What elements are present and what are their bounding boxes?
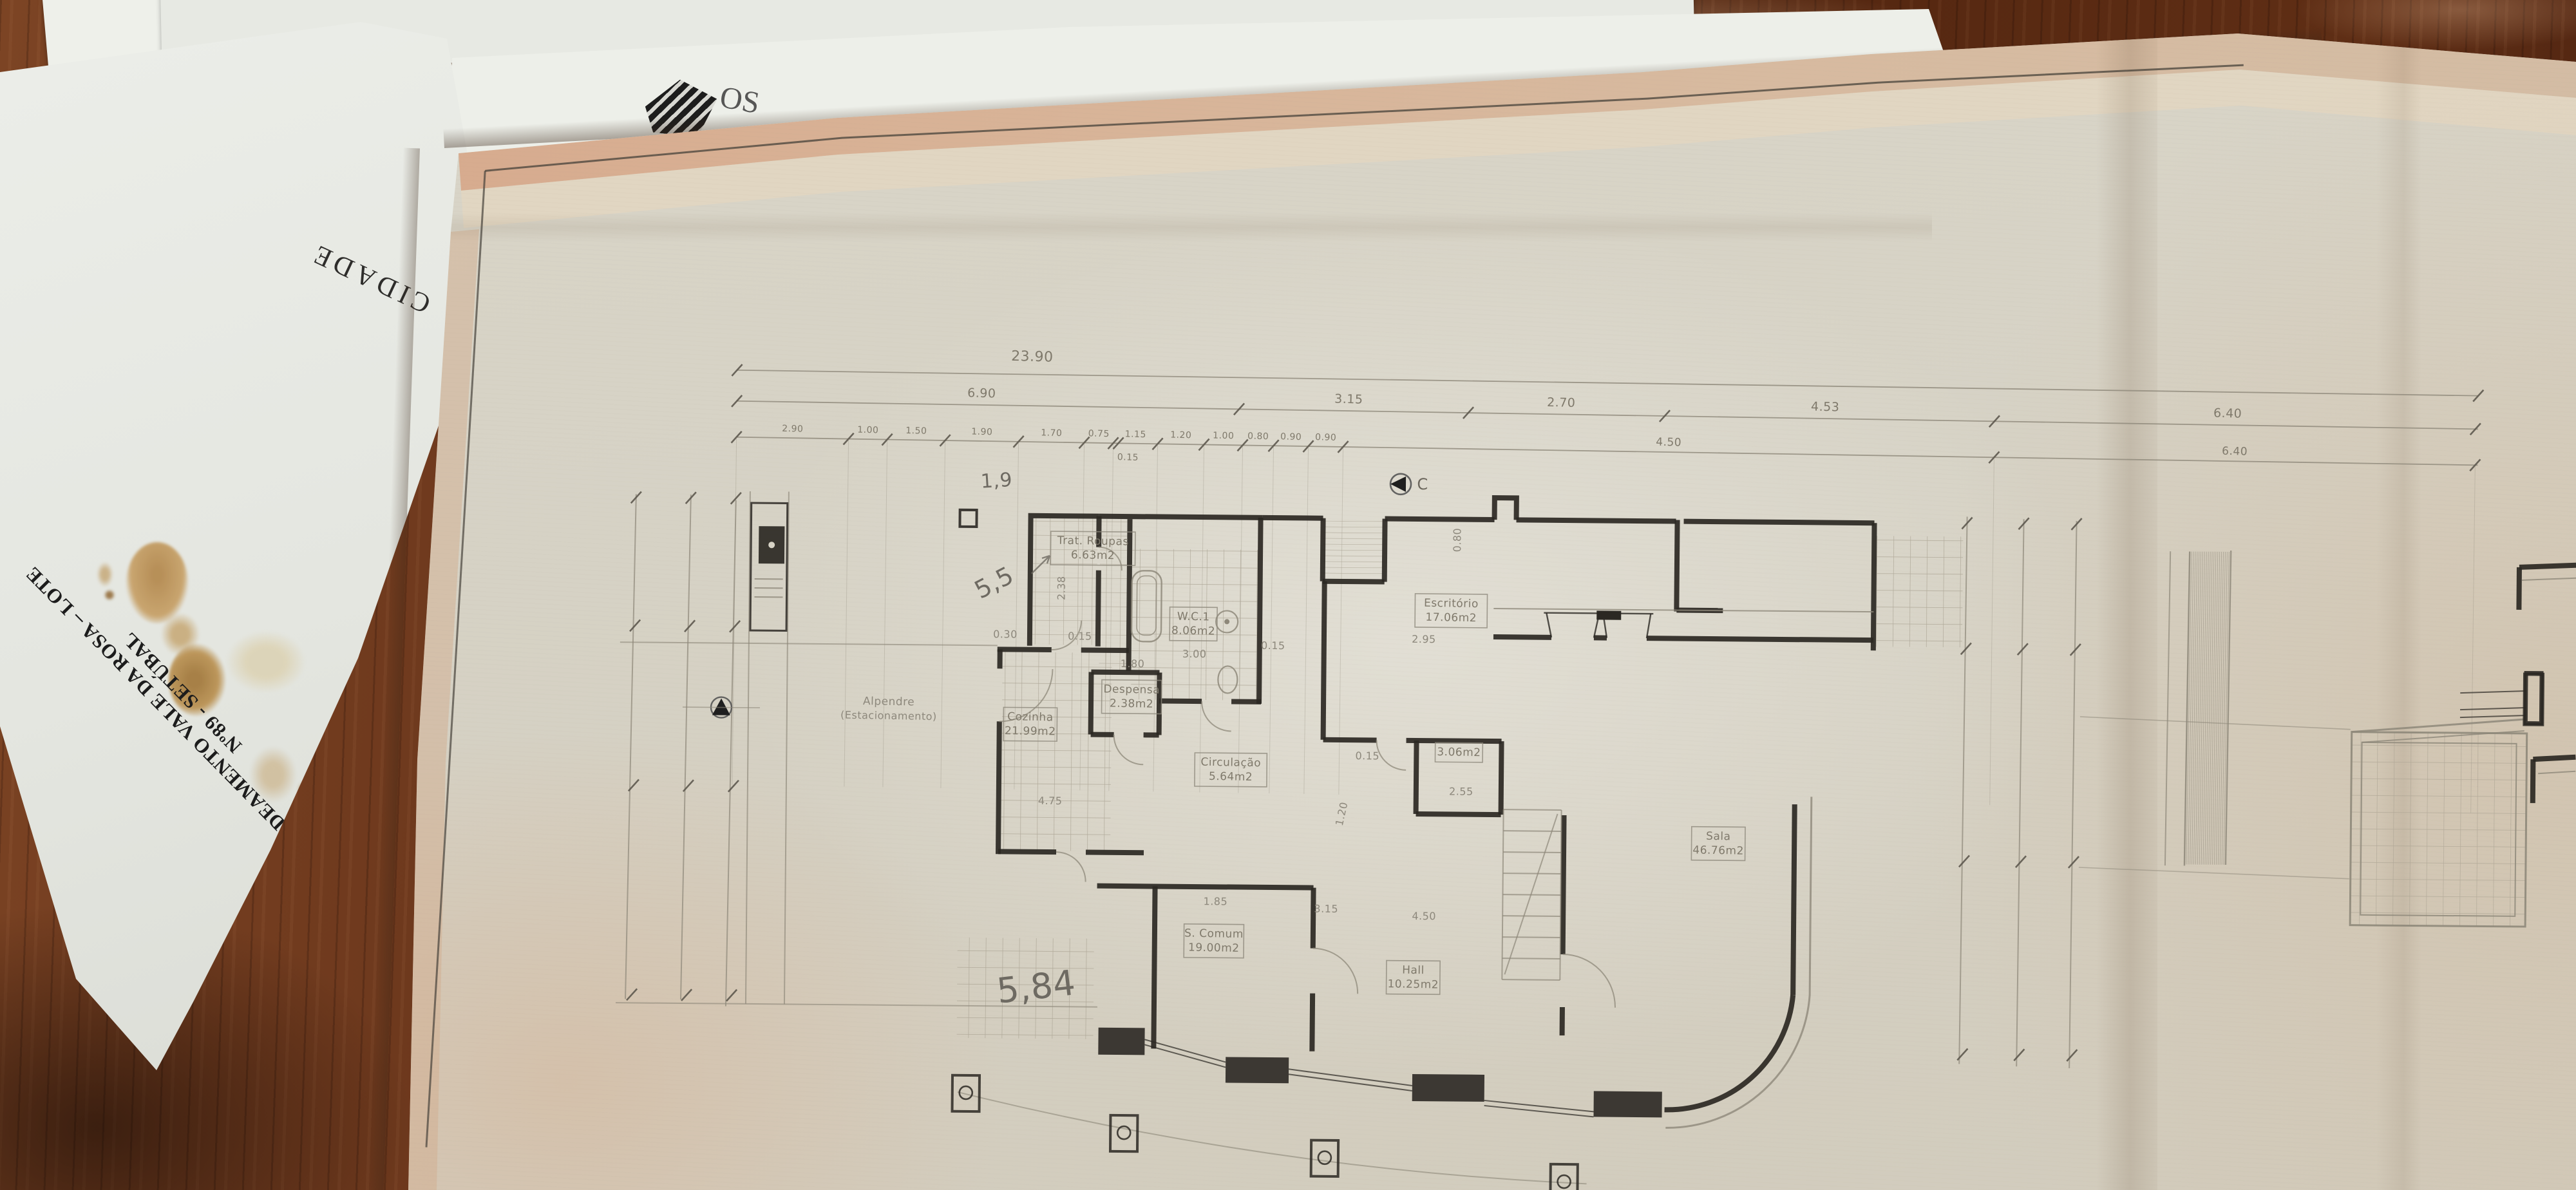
- pencil-line: [2079, 867, 2349, 879]
- wall: [2533, 759, 2533, 803]
- room-label: 3.06m2: [1437, 746, 1481, 759]
- dimension-tick: [2069, 856, 2079, 868]
- wall: [1385, 519, 1385, 582]
- column: [1311, 1140, 1338, 1176]
- dim-label: 1.00: [857, 425, 879, 436]
- kitchen-tiles: [1001, 652, 1112, 851]
- stair-rail: [1560, 810, 1561, 980]
- dim-line: [681, 495, 691, 999]
- window-sill: [1484, 1106, 1593, 1117]
- dim-line: [625, 494, 636, 999]
- dim-label-small: 3.00: [1182, 648, 1207, 660]
- wall: [1665, 994, 1794, 1111]
- wall: [1097, 886, 1314, 888]
- room-label: S. Comum: [1184, 927, 1244, 941]
- door-arc: [1312, 949, 1358, 994]
- wall-pier: [1098, 1028, 1144, 1055]
- dim-label: 1.20: [1170, 430, 1192, 440]
- wall: [1098, 571, 1099, 647]
- marker-axis: [683, 707, 760, 708]
- extension-line: [941, 440, 945, 788]
- stair-rail: [1502, 809, 1503, 979]
- dim-label-small: 4.75: [1038, 795, 1063, 807]
- handwritten-note: 1,9: [980, 469, 1013, 493]
- dim-label-small: 1.85: [1203, 895, 1227, 907]
- coffee-stain: [227, 631, 305, 693]
- window-line: [2538, 771, 2575, 774]
- dimension-tick: [726, 990, 737, 1001]
- room-label: (Estacionamento): [840, 709, 937, 723]
- wall: [998, 721, 999, 854]
- wall: [1385, 519, 1495, 520]
- dim-label-small: 0.15: [1355, 750, 1379, 762]
- stair-tread: [1503, 852, 1561, 853]
- column: [1550, 1164, 1577, 1190]
- wall: [1091, 672, 1092, 735]
- stair-tread: [1503, 873, 1561, 874]
- wall-pier: [2526, 673, 2542, 723]
- door-arc: [1202, 701, 1231, 731]
- wall: [1263, 518, 1323, 518]
- dimension-tick: [730, 621, 740, 632]
- stair-tread: [1502, 958, 1560, 959]
- wall: [1793, 804, 1795, 995]
- dim-label: 6.40: [2213, 406, 2242, 421]
- room-label: W.C.1: [1177, 610, 1210, 624]
- extension-line: [1304, 446, 1309, 794]
- dim-label: 2.70: [1547, 395, 1576, 410]
- wall: [1323, 581, 1385, 582]
- room-label: 2.38m2: [1110, 697, 1154, 711]
- dimension-tick: [2014, 1049, 2024, 1061]
- wall: [1493, 637, 1551, 637]
- extension-line: [883, 440, 887, 788]
- column: [952, 1075, 980, 1111]
- stair-tread: [1502, 937, 1560, 938]
- wall: [998, 851, 1056, 852]
- counter-dot: [768, 542, 775, 548]
- room-label: Escritório: [1424, 597, 1479, 610]
- wall: [1153, 886, 1155, 1048]
- stair-tread: [1502, 979, 1560, 980]
- window-splay: [1546, 613, 1551, 637]
- wall: [1416, 814, 1501, 815]
- toilet-center: [1224, 619, 1229, 624]
- dim-label: 1.00: [1213, 431, 1235, 442]
- wall: [1312, 994, 1312, 1052]
- wall: [1676, 520, 1677, 612]
- terrace-tiles: [1876, 536, 1963, 647]
- dim-label: 3.15: [1334, 392, 1363, 407]
- dimension-tick: [685, 620, 695, 632]
- door-arc: [1113, 735, 1143, 764]
- alpendre-line: [746, 491, 750, 1004]
- wall: [1323, 581, 1325, 740]
- wall: [998, 649, 1052, 650]
- extension-line: [1990, 457, 1994, 805]
- stair-tread: [1502, 916, 1560, 916]
- wall: [1416, 741, 1417, 814]
- dim-label-overall: 23.90: [1011, 348, 1054, 366]
- room-label: Circulação: [1200, 756, 1261, 770]
- door-arc: [1562, 954, 1616, 1008]
- wall: [2519, 565, 2576, 568]
- wall: [1406, 741, 1502, 741]
- window-line: [2522, 578, 2576, 581]
- wall: [1563, 815, 1564, 954]
- wall-pier: [1412, 1074, 1484, 1102]
- eave-curve: [957, 1092, 1587, 1184]
- post: [960, 510, 976, 527]
- window-line: [2460, 715, 2526, 718]
- dim-label-small: 0.15: [1068, 630, 1092, 642]
- room-label: Alpendre: [863, 695, 915, 708]
- room-label: Sala: [1706, 830, 1731, 844]
- room-label: Trat. Roupas: [1057, 534, 1129, 549]
- coffee-stain: [97, 562, 113, 587]
- dim-label: 1.90: [971, 426, 993, 437]
- dim-label: 1.70: [1041, 428, 1063, 439]
- room-label: 46.76m2: [1692, 844, 1744, 857]
- window-splay: [1647, 614, 1651, 638]
- wall: [1313, 888, 1314, 949]
- wall: [2533, 757, 2575, 760]
- orientation-marker-triangle: [712, 698, 730, 715]
- dim-label: 1.50: [905, 426, 927, 437]
- dim-label-small: 4.50: [1412, 910, 1436, 922]
- room-label: 8.06m2: [1171, 624, 1216, 637]
- door-arc: [1056, 852, 1086, 882]
- stair-tread: [1504, 809, 1562, 810]
- dim-label-small: 2.55: [1449, 785, 1473, 797]
- dim-label-small: 0.30: [993, 628, 1018, 640]
- entry-steps: [1323, 521, 1384, 581]
- wall: [1323, 518, 1323, 581]
- handwritten-note: 5,5: [970, 561, 1018, 605]
- alpendre-line: [620, 642, 998, 645]
- window-sill: [1144, 1044, 1226, 1067]
- dimension-tick: [1959, 855, 1969, 867]
- dim-label: 6.90: [967, 386, 996, 401]
- room-label: 19.00m2: [1188, 941, 1240, 955]
- dim-line: [2016, 519, 2023, 1066]
- wall: [1647, 638, 1873, 640]
- section-marker-letter: C: [1417, 475, 1428, 493]
- dim-label: 6.40: [2222, 445, 2248, 458]
- wall: [1323, 740, 1377, 741]
- dim-label: 4.50: [1656, 436, 1681, 449]
- wall-pier: [1226, 1057, 1289, 1083]
- wall: [1873, 523, 1875, 650]
- wall: [1501, 741, 1502, 815]
- dim-label: 0.75: [1088, 428, 1110, 439]
- column: [1110, 1115, 1137, 1151]
- dim-label: 1.15: [1124, 429, 1146, 440]
- dimension-tick: [1961, 643, 1971, 654]
- dim-label-small: 0.15: [1261, 639, 1285, 652]
- column-circle: [1558, 1175, 1571, 1188]
- dim-line: [736, 437, 2477, 466]
- dim-label: 0.90: [1315, 432, 1337, 443]
- wall: [1259, 518, 1261, 704]
- stamp-text-cidade: CIDADE: [294, 232, 447, 325]
- stair-tread: [1502, 894, 1560, 895]
- dimension-tick: [627, 988, 637, 1000]
- wall: [1159, 673, 1160, 735]
- coffee-stain: [126, 542, 188, 623]
- wall: [1517, 520, 1676, 521]
- window-line: [2460, 707, 2526, 710]
- dim-label: 0.80: [1247, 431, 1269, 442]
- wall: [1495, 498, 1517, 520]
- dim-label: 2.90: [782, 424, 804, 435]
- room-label: Hall: [1402, 964, 1425, 977]
- dim-label-small: 2.38: [1055, 576, 1067, 600]
- column-circle: [1318, 1151, 1331, 1164]
- room-label: 5.64m2: [1209, 770, 1253, 784]
- wall: [2519, 567, 2519, 610]
- room-label: 17.06m2: [1425, 611, 1477, 625]
- dark-sill: [1596, 610, 1621, 619]
- dimension-tick: [630, 619, 640, 631]
- wall: [1099, 516, 1263, 518]
- wall: [1086, 853, 1144, 853]
- dimension-tick: [681, 989, 692, 1001]
- far-terrace-top: [2352, 718, 2524, 733]
- dim-label: 4.53: [1811, 399, 1840, 414]
- room-label: 21.99m2: [1005, 724, 1056, 738]
- dim-line: [737, 370, 2478, 396]
- dim-label-small: 0.80: [1451, 528, 1463, 552]
- room-label: 10.25m2: [1387, 977, 1439, 991]
- dimension-tick: [2067, 1050, 2077, 1061]
- window-sill: [1144, 1039, 1226, 1062]
- wall: [1159, 701, 1202, 702]
- room-label: Despensa: [1103, 683, 1160, 697]
- wall-pier: [1593, 1091, 1662, 1117]
- dim-line: [2069, 521, 2076, 1068]
- dim-label-small: 2.95: [1412, 633, 1436, 645]
- dim-label-small: 3.15: [1314, 903, 1338, 915]
- dim-label-small: 1.20: [1333, 800, 1350, 827]
- window-line: [2460, 690, 2526, 694]
- photo-blueprint-on-table: CIDADE ALDEAMENTO VALE DA ROSA – LOTE Nº…: [0, 0, 2576, 1190]
- extension-line: [1269, 446, 1274, 793]
- room-label: 6.63m2: [1071, 549, 1115, 562]
- dim-line: [726, 500, 736, 1006]
- dim-label: 0.90: [1280, 431, 1302, 442]
- dim-label-small: 1.80: [1121, 657, 1145, 670]
- extension-line: [844, 439, 849, 787]
- dimension-tick: [2016, 856, 2026, 867]
- dim-line: [2165, 551, 2170, 865]
- counter-outline: [750, 503, 788, 630]
- door-arc: [1376, 740, 1406, 770]
- room-label: Cozinha: [1007, 710, 1054, 724]
- window-sill: [1484, 1100, 1594, 1111]
- wall: [1091, 672, 1159, 673]
- wall: [1684, 522, 1875, 524]
- dim-label: 0.15: [1117, 452, 1139, 463]
- wall: [1081, 650, 1129, 650]
- far-terrace-tiles: [2350, 732, 2527, 927]
